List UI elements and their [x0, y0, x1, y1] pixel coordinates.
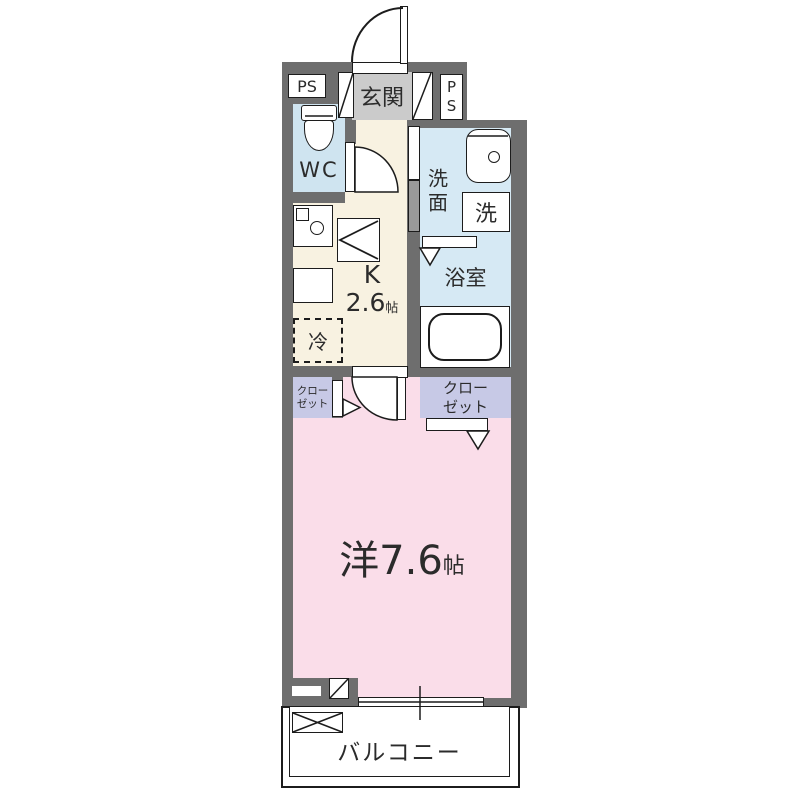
kitchen-size-unit: 帖: [385, 297, 398, 316]
main-room-floor-strip: [343, 377, 420, 418]
wc-door-leaf: [345, 142, 355, 192]
ps-right-label: PS: [443, 78, 461, 116]
entrance-label: 玄関: [352, 72, 412, 120]
laundry-box: 洗: [462, 192, 510, 232]
ps-left-label: PS: [297, 77, 317, 96]
ps-left-box: PS: [288, 74, 326, 98]
closet-left-label: クローゼット: [293, 379, 332, 417]
toilet-tank-icon: [301, 105, 337, 121]
wc-label: WC: [293, 156, 345, 184]
balcony-label: バルコニー: [289, 735, 510, 765]
kitchen-counter: [293, 268, 333, 303]
main-room-door-leaf: [397, 377, 406, 420]
sliding-door-opening: [408, 126, 420, 180]
bathroom-label: 浴室: [420, 264, 511, 290]
ps-right-box: PS: [440, 74, 463, 120]
kitchen-letter: K: [337, 260, 407, 288]
entrance-step-right: [412, 72, 433, 120]
wall-below-wc: [293, 192, 345, 203]
wall-vent-slit: [292, 686, 321, 696]
entrance-door-arc: [352, 8, 403, 62]
ac-unit-box: [292, 712, 343, 733]
main-room-unit: 帖: [443, 548, 465, 580]
kitchen-range-icon: [337, 218, 380, 262]
entrance-door-leaf: [400, 6, 408, 64]
sliding-door-panel: [408, 180, 420, 232]
closet-left-door-leaf: [332, 380, 343, 417]
main-room-label: 洋7.6帖: [293, 530, 511, 584]
bathroom-door-leaf: [422, 236, 477, 248]
fridge-box: 冷: [293, 318, 343, 363]
washbasin-drain-icon: [488, 151, 500, 163]
closet-right-door-leaf: [426, 418, 488, 431]
kitchen-faucet-icon: [310, 221, 324, 235]
bathtub-icon: [428, 313, 502, 361]
floor-plan: PS PS 玄関 WC K 2.6帖 冷 洗面 洗 浴室: [0, 0, 800, 800]
washroom-label: 洗面: [424, 155, 450, 229]
kitchen-sink-sub-box: [296, 208, 309, 221]
pillar-hatch-box: [329, 678, 349, 699]
closet-right-label: クローゼット: [420, 378, 511, 418]
kitchen-size-label: 2.6帖: [330, 288, 414, 316]
